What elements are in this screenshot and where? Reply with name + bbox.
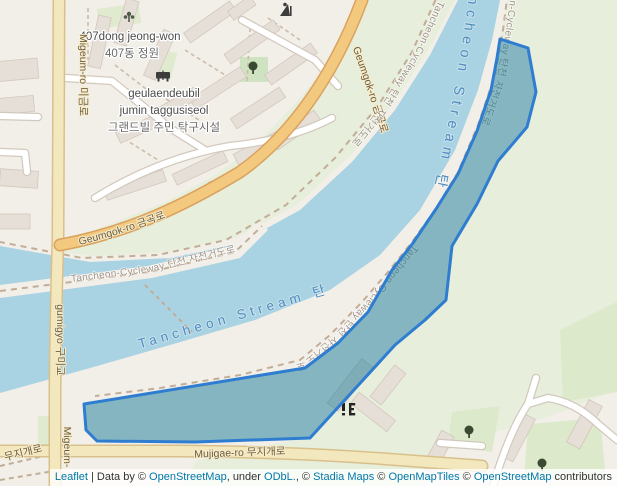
leaflet-link[interactable]: Leaflet — [55, 471, 88, 483]
road-label-migeum-ro: Migeum-ro 미금로 — [77, 34, 89, 116]
attribution-text: © — [460, 471, 474, 483]
road-label-migeum-partial: Migeum- — [61, 427, 73, 468]
road-label-gumigyo: gumigyo 구미교 — [54, 304, 66, 376]
place-label-407dong-en: 407dong jeong-won — [79, 31, 180, 43]
odbl-link[interactable]: ODbL. — [264, 471, 296, 483]
openmaptiles-link[interactable]: OpenMapTiles — [388, 471, 459, 483]
attribution-text: | Data by © — [88, 471, 149, 483]
openstreetmap-link[interactable]: OpenStreetMap — [149, 471, 227, 483]
attribution-text: , © — [296, 471, 313, 483]
openstreetmap-link-2[interactable]: OpenStreetMap — [474, 471, 552, 483]
map-tiles: 407dong jeong-won 407동 정원 geulaendeubil … — [0, 0, 617, 486]
leaflet-map-container[interactable]: 407dong jeong-won 407동 정원 geulaendeubil … — [0, 0, 617, 486]
place-label-grandville-2: jumin taggusiseol — [119, 105, 209, 117]
attribution-text: , under — [227, 471, 264, 483]
place-label-grandville-1: geulaendeubil — [128, 88, 200, 100]
attribution-text: © — [374, 471, 388, 483]
place-label-407dong-ko: 407동 정원 — [105, 46, 159, 60]
attribution-text: contributors — [551, 471, 612, 483]
stadia-maps-link[interactable]: Stadia Maps — [313, 471, 374, 483]
attribution-bar: Leaflet | Data by © OpenStreetMap, under… — [50, 469, 617, 486]
table-tennis-icon — [156, 71, 170, 82]
place-label-grandville-ko: 그랜드빌 주민 탁구시설 — [108, 121, 220, 134]
